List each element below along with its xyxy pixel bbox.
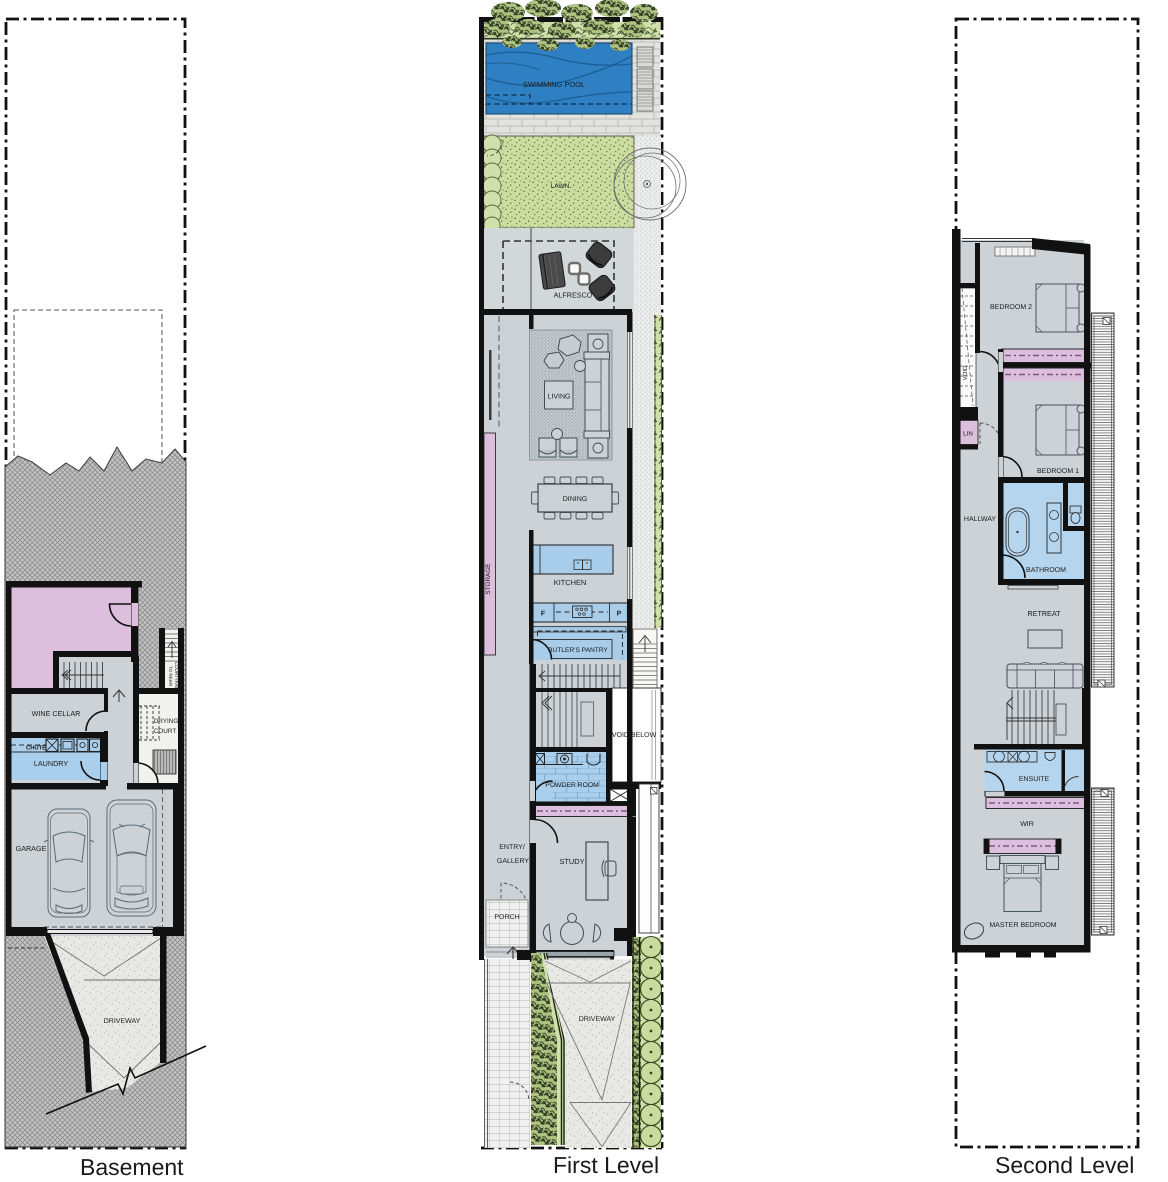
svg-text:LAWN: LAWN xyxy=(551,183,570,190)
svg-text:GALLERY: GALLERY xyxy=(497,858,529,865)
svg-text:WIR: WIR xyxy=(1020,821,1034,828)
svg-text:RETREAT: RETREAT xyxy=(1027,609,1061,618)
svg-text:VOID: VOID xyxy=(962,365,969,380)
svg-text:SWIMMING POOL: SWIMMING POOL xyxy=(523,80,585,89)
svg-text:GARAGE: GARAGE xyxy=(16,844,47,853)
svg-text:VOID BELOW: VOID BELOW xyxy=(612,732,657,739)
svg-text:COURT: COURT xyxy=(154,728,177,735)
svg-text:P: P xyxy=(617,611,622,618)
svg-text:POWDER ROOM: POWDER ROOM xyxy=(545,782,599,789)
svg-text:BATHROOM: BATHROOM xyxy=(1026,567,1066,574)
svg-text:LAUNDRY: LAUNDRY xyxy=(34,759,68,768)
svg-text:PORCH: PORCH xyxy=(494,914,519,921)
svg-text:LIN: LIN xyxy=(963,431,973,438)
svg-text:CHUTE: CHUTE xyxy=(26,745,46,752)
svg-text:STUDY: STUDY xyxy=(559,857,584,866)
svg-text:ENSUITE: ENSUITE xyxy=(1019,776,1050,783)
svg-text:BUTLER'S PANTRY: BUTLER'S PANTRY xyxy=(548,647,608,654)
svg-text:MASTER BEDROOM: MASTER BEDROOM xyxy=(989,922,1056,929)
svg-text:ENTRY/: ENTRY/ xyxy=(499,843,525,851)
svg-text:DINING: DINING xyxy=(563,496,588,503)
svg-text:ALFRESCO: ALFRESCO xyxy=(554,291,593,300)
svg-text:Second Level: Second Level xyxy=(995,1152,1134,1178)
svg-text:HALLWAY: HALLWAY xyxy=(964,516,996,523)
svg-text:LIVING: LIVING xyxy=(548,394,571,401)
svg-text:KITCHEN: KITCHEN xyxy=(554,578,586,587)
svg-text:Basement: Basement xyxy=(80,1154,184,1180)
svg-text:DRYING: DRYING xyxy=(154,718,179,725)
svg-text:F: F xyxy=(541,611,546,618)
svg-text:First Level: First Level xyxy=(553,1152,659,1178)
svg-text:TO REAR: TO REAR xyxy=(168,666,173,687)
svg-text:DRIVEWAY: DRIVEWAY xyxy=(579,1016,616,1023)
svg-text:BEDROOM 2: BEDROOM 2 xyxy=(990,304,1032,311)
svg-text:DRIVEWAY: DRIVEWAY xyxy=(104,1018,141,1025)
svg-text:BEDROOM 1: BEDROOM 1 xyxy=(1037,468,1079,475)
svg-text:STORAGE: STORAGE xyxy=(485,563,492,594)
svg-text:WINE CELLAR: WINE CELLAR xyxy=(32,709,81,718)
